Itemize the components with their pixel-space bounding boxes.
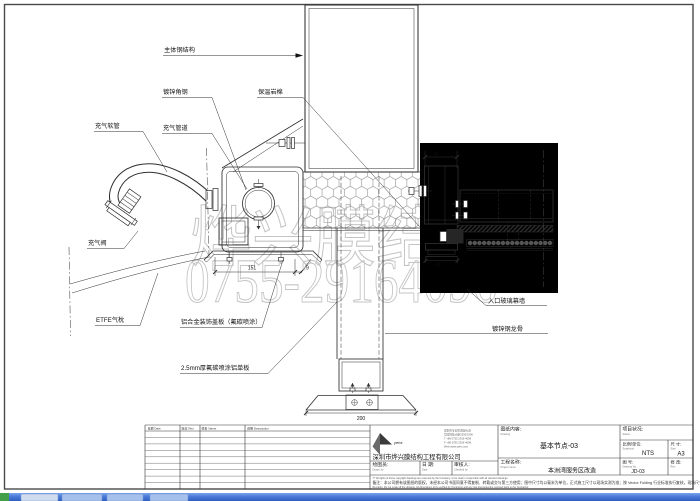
company-address-1: 深圳市宝安区观澜大道	[444, 429, 471, 433]
rev-header-desc: 说明 Description	[247, 426, 269, 431]
field-size-en: Size	[671, 447, 677, 451]
note-line-1: ©* All rights of these copyright drawing…	[373, 477, 509, 480]
company-address-4: F +86 0755 2916 4096	[444, 441, 472, 445]
field-rev-label: 修 改:	[671, 459, 682, 466]
field-scale-en: Scale/unit	[623, 447, 635, 451]
dim-mullion-top: 60	[434, 152, 439, 157]
label-entrance-wall: 入口玻璃幕墙	[488, 297, 525, 305]
company-logo: yehx	[373, 433, 404, 455]
start-button[interactable]	[0, 493, 9, 501]
label-steel-keel: 镀锌钢龙骨	[492, 325, 523, 333]
company-logo-text: yehx	[393, 440, 403, 445]
label-air-pipe: 充气管道	[163, 124, 188, 132]
field-content-en: Drawing	[501, 432, 511, 436]
inflation-valve-assembly	[103, 183, 150, 229]
taskbar-window-button[interactable]	[21, 494, 58, 501]
scale-value: NTS	[642, 451, 654, 457]
label-main-steel: 主体钢结构	[164, 46, 195, 54]
field-rev-en: Rev.	[671, 465, 676, 469]
field-check-label: 审核人:	[454, 461, 470, 468]
field-drawn-label: 绘图员:	[373, 461, 389, 468]
taskbar	[0, 493, 700, 501]
drawing-sheet: 烨兴膜结构 0755-29164096 s.com	[0, 0, 700, 501]
dim-column-base: 200	[357, 416, 366, 422]
label-rock-wool: 保温岩棉	[258, 88, 283, 96]
company-address-5: Web www.yehx.com	[444, 445, 469, 449]
rev-header-name: 姓名 Name	[202, 426, 217, 431]
curtain-wall-detail: 60	[408, 143, 558, 293]
company-name: 深圳市烨兴膜结构工程有限公司	[373, 452, 461, 461]
note-line-3: Remarks: Do not scale off the drawing. A…	[373, 486, 530, 489]
field-status-en: Status	[623, 432, 631, 436]
field-drawn-en: Drawn by	[373, 468, 385, 472]
label-galv-angle: 镀锌角钢	[163, 88, 188, 96]
taskbar-background	[0, 493, 700, 501]
field-check-en: Checked by	[454, 468, 468, 472]
taskbar-window-button[interactable]	[150, 494, 188, 501]
field-status-label: 项目状况:	[623, 426, 644, 433]
taskbar-window-button[interactable]	[62, 494, 102, 501]
label-alu-panel: 2.5mm厚氟碳喷涂铝单板	[181, 364, 249, 372]
field-date-en: Date	[422, 468, 428, 472]
company-address-3: T +86 0755 2916 4096	[444, 437, 472, 441]
project-name: 本洲湾服务区改造	[548, 467, 596, 475]
field-content-label: 图纸内容:	[501, 426, 522, 433]
dim-plate-offset: 9	[306, 266, 309, 272]
rev-header-date: 日期 Date	[148, 426, 162, 431]
label-air-hose: 充气软管	[95, 122, 120, 130]
field-scale-label: 比例/单位:	[623, 441, 642, 448]
rock-wool-insulation	[303, 172, 426, 231]
size-value: A3	[677, 452, 685, 458]
taskbar-window-button[interactable]	[107, 494, 143, 501]
field-project-label: 工程名称:	[501, 459, 522, 466]
field-date-label: 日 期:	[422, 462, 434, 468]
drawing-title: 基本节点-03	[540, 441, 578, 450]
label-etfe-cushion: ETFE气枕	[96, 316, 124, 324]
rev-header-rev: 版本 Rev.	[182, 426, 195, 431]
dim-plate-width: 151	[248, 266, 257, 272]
field-project-en: Project name	[501, 465, 517, 469]
field-size-label: 尺 寸:	[671, 441, 682, 448]
dim-mullion-bottom: 62	[436, 263, 441, 268]
label-air-valve: 充气阀	[88, 239, 107, 247]
dwg-number: JD-03	[631, 469, 645, 475]
label-alu-cover: 铝合金装饰盖板（氟碳喷涂）	[181, 318, 261, 326]
company-address-2: 华园科技大厦3305/3306	[444, 433, 473, 437]
field-dwg-en: Drawing No.	[623, 465, 638, 469]
note-line-2: 备注：本公司拥有该图纸的版权，未经本公司书面同意不得复制、转载或交与第三方使用；…	[373, 480, 700, 485]
steel-column-section	[305, 5, 418, 172]
title-block: 日期 Date 版本 Rev. 姓名 Name 说明 Description y…	[145, 425, 700, 489]
